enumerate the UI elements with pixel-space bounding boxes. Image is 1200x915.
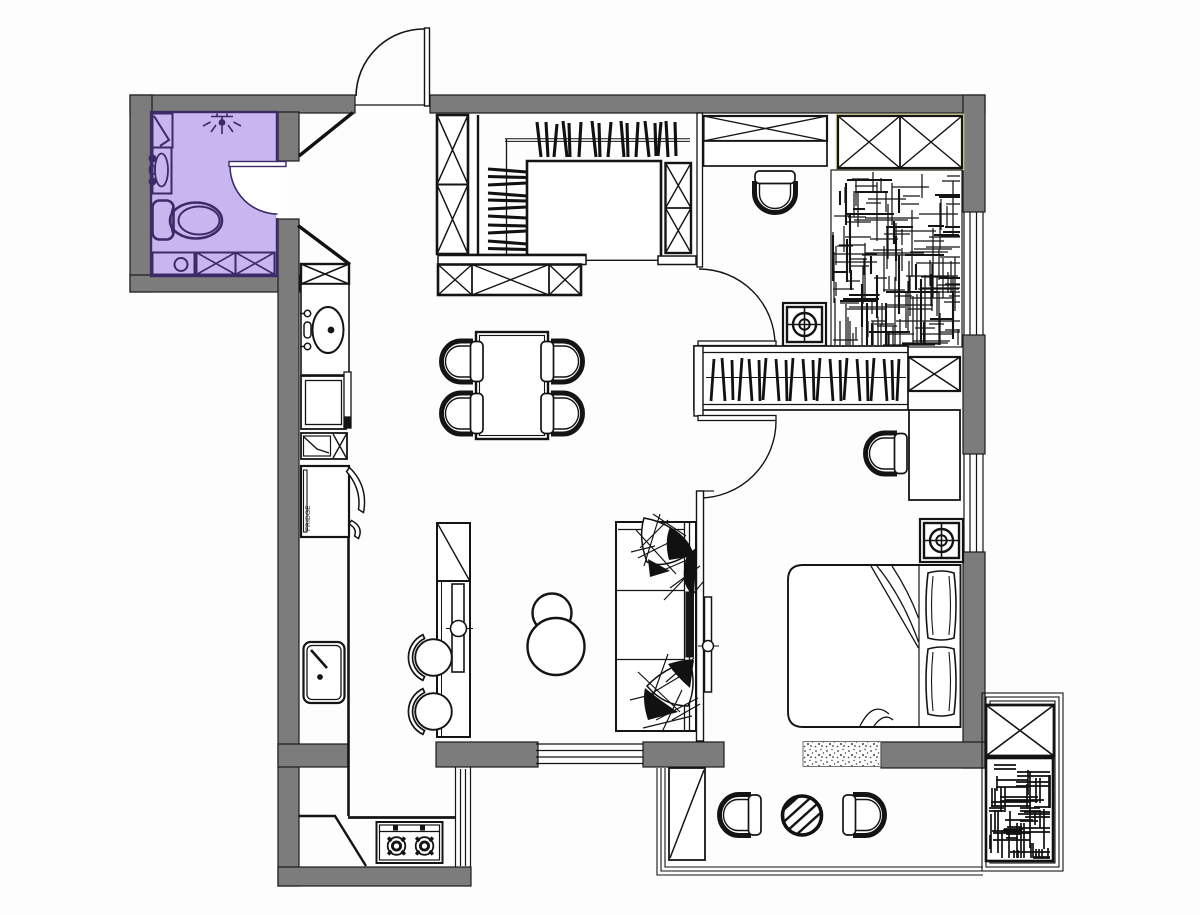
svg-text:FRIDGE: FRIDGE xyxy=(305,505,312,531)
